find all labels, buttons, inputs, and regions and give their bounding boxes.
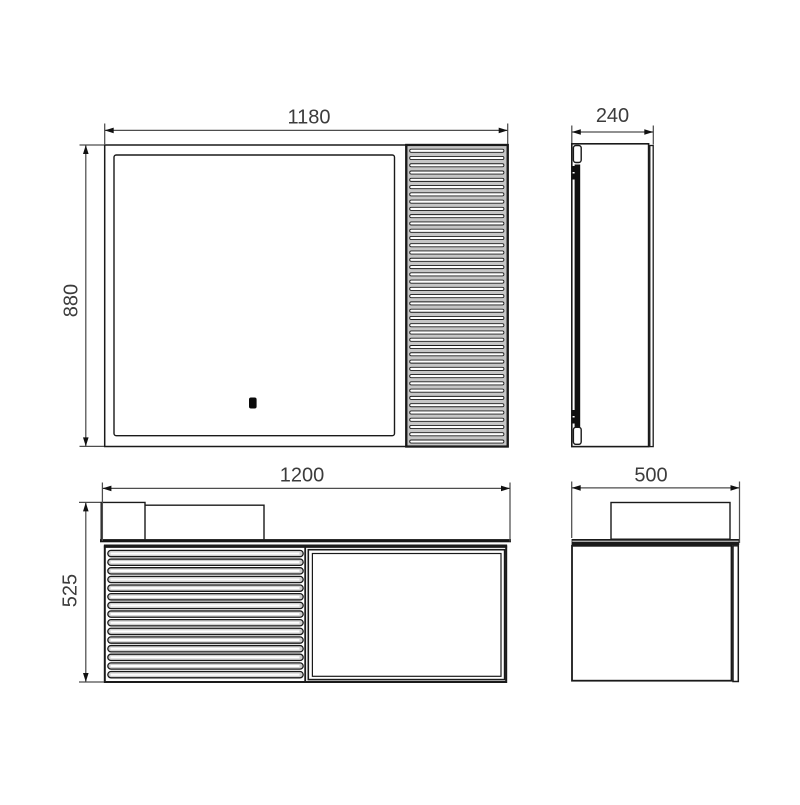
svg-text:525: 525 xyxy=(60,574,82,607)
svg-text:1200: 1200 xyxy=(280,464,325,486)
svg-text:1180: 1180 xyxy=(287,107,330,129)
svg-text:880: 880 xyxy=(61,284,83,317)
svg-text:240: 240 xyxy=(596,105,629,127)
svg-text:500: 500 xyxy=(634,465,667,487)
